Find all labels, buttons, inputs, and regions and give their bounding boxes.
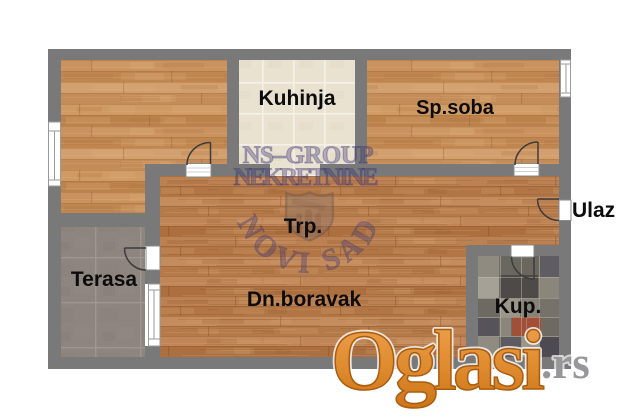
svg-text:NEKRETNINE: NEKRETNINE	[234, 164, 379, 191]
svg-text:Trp.: Trp.	[284, 215, 323, 238]
svg-text:Terasa: Terasa	[71, 268, 137, 291]
svg-text:Ulaz: Ulaz	[572, 199, 615, 222]
svg-text:.rs: .rs	[541, 338, 590, 388]
svg-text:Kuhinja: Kuhinja	[259, 87, 336, 110]
svg-text:Oglasi: Oglasi	[331, 312, 545, 408]
svg-text:Dn.boravak: Dn.boravak	[247, 288, 362, 311]
svg-text:Sp.soba: Sp.soba	[416, 97, 495, 119]
